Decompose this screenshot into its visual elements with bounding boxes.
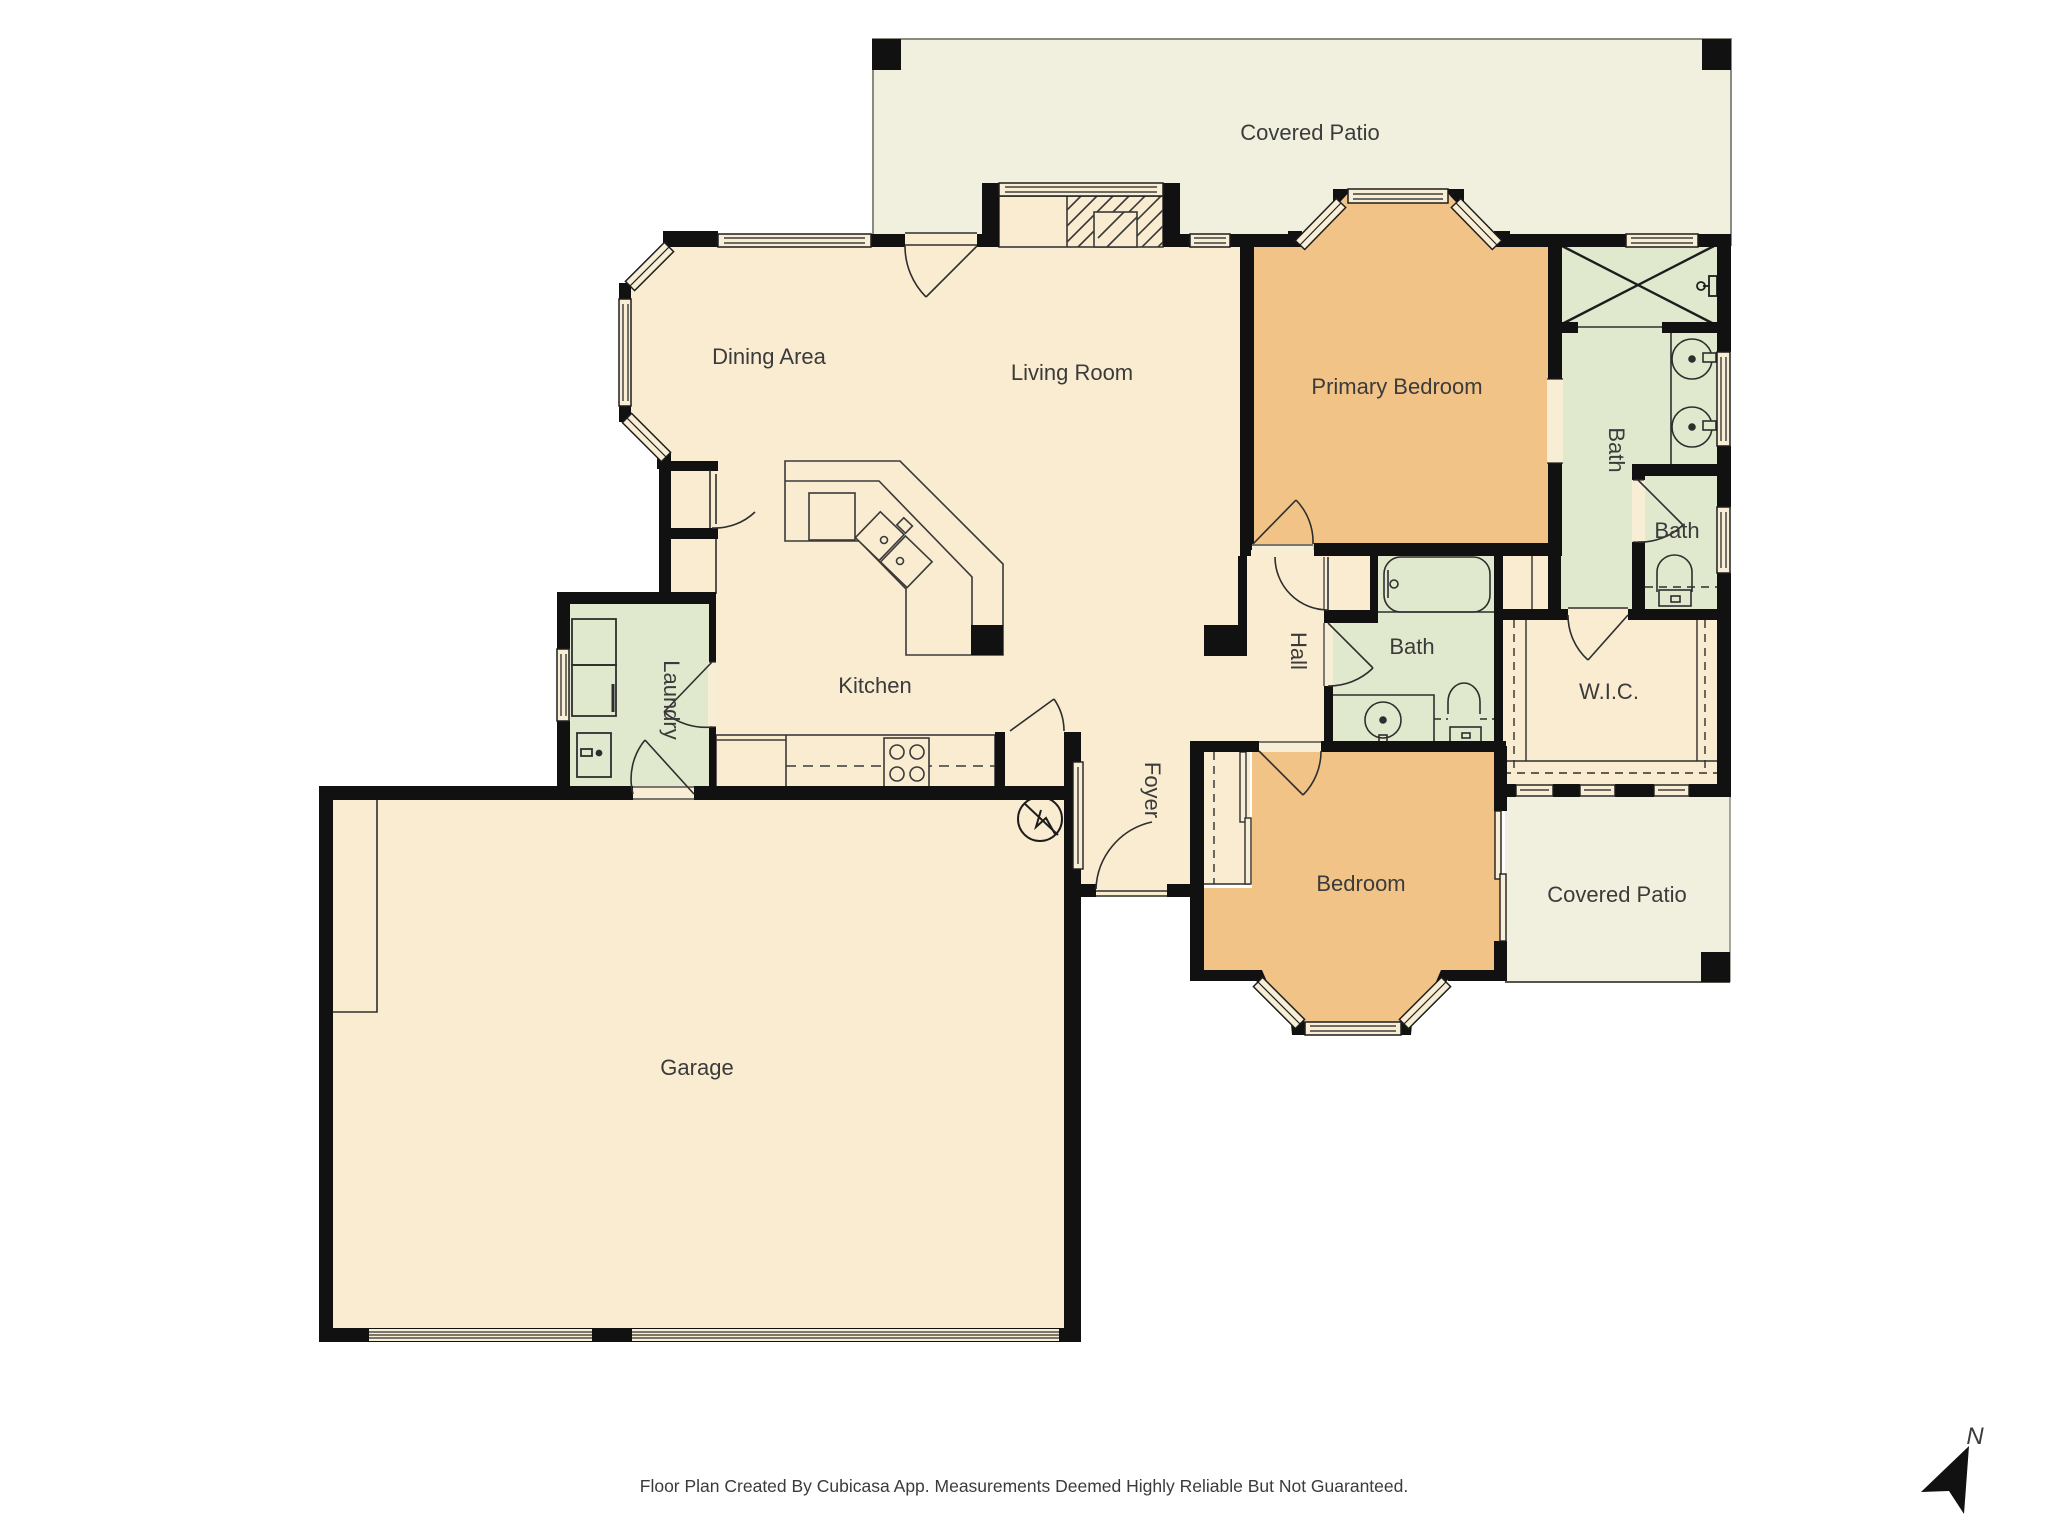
svg-text:Dining Area: Dining Area bbox=[712, 344, 827, 369]
svg-text:Bedroom: Bedroom bbox=[1316, 871, 1405, 896]
svg-text:Garage: Garage bbox=[660, 1055, 733, 1080]
svg-text:Covered Patio: Covered Patio bbox=[1547, 882, 1686, 907]
svg-text:Bath: Bath bbox=[1654, 518, 1699, 543]
svg-text:Covered Patio: Covered Patio bbox=[1240, 120, 1379, 145]
svg-text:Hall: Hall bbox=[1286, 632, 1311, 670]
svg-text:Kitchen: Kitchen bbox=[838, 673, 911, 698]
svg-text:Primary Bedroom: Primary Bedroom bbox=[1311, 374, 1482, 399]
svg-text:Living Room: Living Room bbox=[1011, 360, 1133, 385]
svg-text:Bath: Bath bbox=[1389, 634, 1434, 659]
svg-text:Foyer: Foyer bbox=[1140, 762, 1165, 818]
svg-text:Bath: Bath bbox=[1604, 427, 1629, 472]
svg-text:N: N bbox=[1966, 1423, 1984, 1450]
svg-text:W.I.C.: W.I.C. bbox=[1579, 679, 1639, 704]
svg-text:Laundry: Laundry bbox=[659, 660, 684, 740]
svg-text:Floor Plan Created By Cubicasa: Floor Plan Created By Cubicasa App. Meas… bbox=[640, 1476, 1408, 1496]
